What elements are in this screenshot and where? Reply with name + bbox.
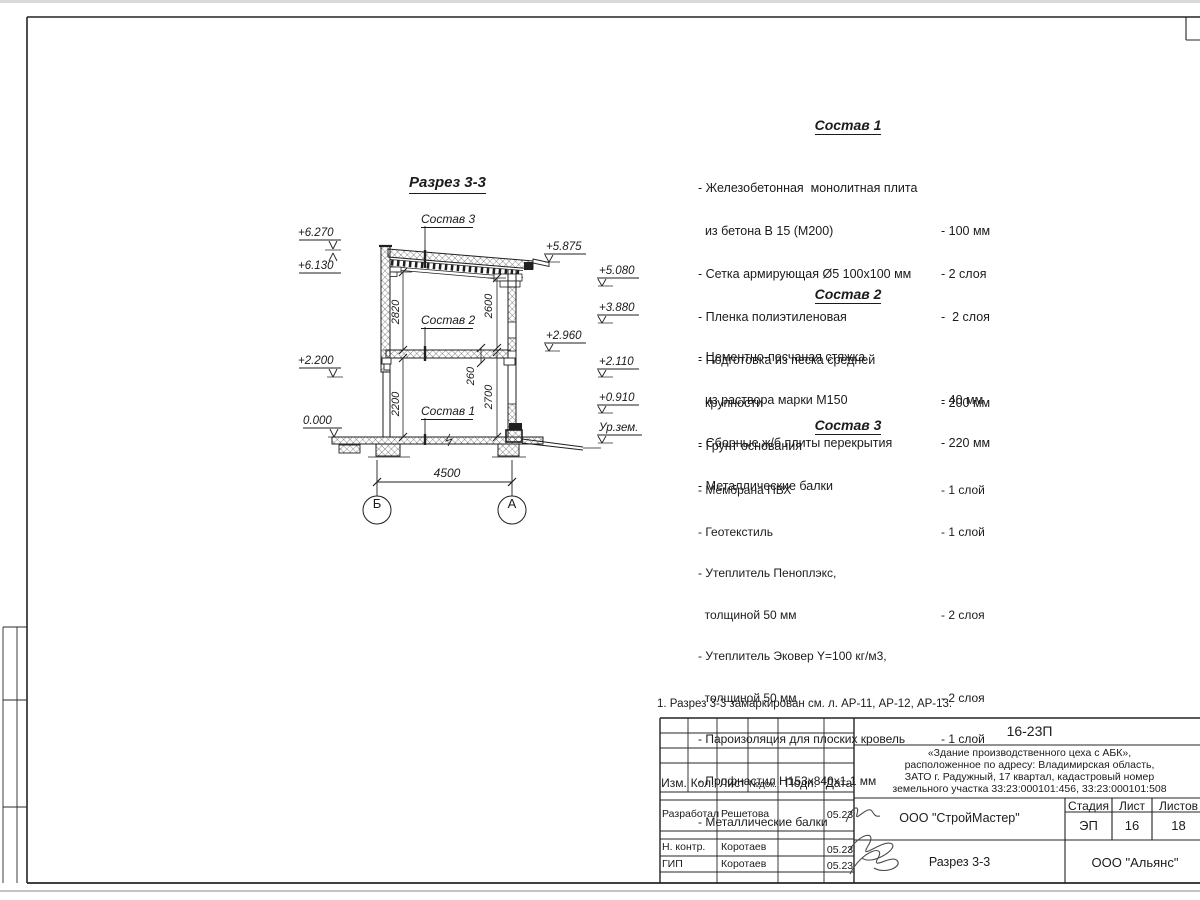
- callout-sostav-3: Состав 3: [421, 212, 473, 228]
- tb-sheets-total: 18: [1152, 818, 1200, 833]
- tb-sheet-name: Разрез 3-3: [854, 855, 1065, 869]
- elevation-marks-right: [544, 254, 642, 443]
- sostav2-heading: Состав 2: [778, 286, 918, 302]
- tb-col-izm: Изм.: [660, 776, 688, 790]
- elevation-0000: 0.000: [303, 415, 332, 427]
- elevation-5080: +5.080: [599, 265, 635, 277]
- tb-doc-number: 16-23П: [854, 723, 1200, 739]
- tb-col-kol: Кол.: [688, 776, 717, 790]
- elevation-0910: +0.910: [599, 392, 635, 404]
- tb-date: 05.23: [826, 809, 854, 821]
- elevation-6270: +6.270: [298, 227, 334, 239]
- list-item: - Сборные ж/б плиты перекрытия- 220 мм: [698, 436, 1018, 451]
- tb-date: 05.23: [826, 844, 854, 856]
- tb-project-line: земельного участка 33:23:000101:456, 33:…: [854, 783, 1200, 795]
- tb-col-list: Лист: [717, 776, 748, 790]
- callout-sostav-2: Состав 2: [421, 313, 473, 329]
- sostav1-heading: Состав 1: [778, 117, 918, 133]
- tb-project-line: ЗАТО г. Радужный, 17 квартал, кадастровы…: [854, 771, 1200, 783]
- tb-stage-value: ЭП: [1065, 818, 1112, 833]
- tb-role: Разработал: [662, 808, 719, 820]
- left-margin-stamps: [3, 627, 27, 883]
- tb-name: Коротаев: [721, 841, 766, 853]
- tb-col-data: Дата: [824, 776, 854, 790]
- elevation-6130: +6.130: [298, 260, 334, 272]
- dim-2600: 2600: [483, 284, 495, 328]
- list-item: - Утеплитель Эковер Y=100 кг/м3,: [698, 649, 1018, 663]
- dim-260: 260: [465, 354, 477, 398]
- drawing-sheet: { "page": { "note": "1. Разрез 3-3 замар…: [0, 0, 1200, 900]
- sheet-note: 1. Разрез 3-3 замаркирован см. л. АР-11,…: [657, 698, 952, 710]
- tb-name: Коротаев: [721, 858, 766, 870]
- elevation-3880: +3.880: [599, 302, 635, 314]
- list-item: из бетона В 15 (М200)- 100 мм: [698, 224, 1018, 239]
- callout-sostav-1: Состав 1: [421, 404, 473, 420]
- tb-role: ГИП: [662, 858, 683, 870]
- tb-project-line: расположенное по адресу: Владимирская об…: [854, 759, 1200, 771]
- tb-project-line: «Здание производственного цеха с АБК»,: [854, 747, 1200, 759]
- sostav3-heading: Состав 3: [778, 417, 918, 433]
- tb-client: ООО "Альянс": [1065, 855, 1200, 870]
- axis-bubble-a: А: [498, 496, 526, 524]
- axis-bubble-b: Б: [363, 496, 391, 524]
- tb-stage-label: Стадия: [1065, 799, 1112, 813]
- elevation-ground-level: Ур.зем.: [599, 422, 638, 434]
- dim-4500: 4500: [417, 466, 477, 480]
- list-item: - Сетка армирующая Ø5 100х100 мм- 2 слоя: [698, 267, 1018, 282]
- elevation-2200: +2.200: [298, 355, 334, 367]
- section-view-title: Разрез 3-3: [400, 174, 495, 191]
- list-item: - Цементно-песчаная стяжка: [698, 350, 1018, 365]
- tb-date: 05.23: [826, 860, 854, 872]
- dim-2200: 2200: [390, 382, 402, 426]
- list-item: - Железобетонная монолитная плита: [698, 181, 1018, 196]
- elevation-2110: +2.110: [599, 356, 634, 368]
- tb-list-label: Лист: [1112, 799, 1152, 813]
- tb-sheet-number: 16: [1112, 818, 1152, 833]
- dim-2820: 2820: [390, 290, 402, 334]
- dim-2700: 2700: [483, 375, 495, 419]
- list-item: - Мембрана ПВХ- 1 слой: [698, 483, 1018, 497]
- tb-role: Н. контр.: [662, 841, 705, 853]
- tb-col-ndok: №док.: [748, 779, 778, 790]
- list-item: из раствора марки М150- 40 мм: [698, 393, 1018, 408]
- tb-listov-label: Листов: [1152, 799, 1200, 813]
- tb-name: Решетова: [721, 808, 769, 820]
- elevation-5875: +5.875: [546, 241, 582, 253]
- list-item: толщиной 50 мм- 2 слоя: [698, 608, 1018, 622]
- tb-col-podp: Подп.: [778, 776, 824, 790]
- elevation-2960: +2.960: [546, 330, 582, 342]
- tb-contractor: ООО "СтройМастер": [854, 811, 1065, 825]
- list-item: - Утеплитель Пеноплэкс,: [698, 566, 1018, 580]
- list-item: - Геотекстиль- 1 слой: [698, 525, 1018, 539]
